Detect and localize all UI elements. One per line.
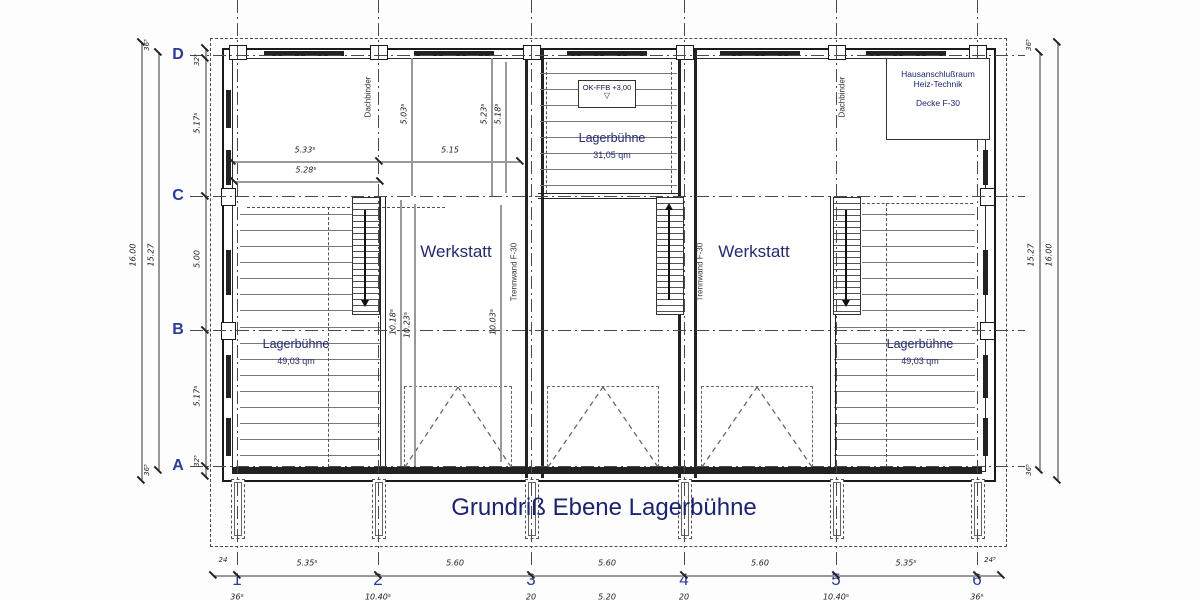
interior-vdim-6 — [500, 205, 502, 462]
interior-vdim-5 — [414, 204, 416, 466]
garage-door-2 — [547, 386, 659, 467]
stair-center-arrow-up-icon — [665, 203, 673, 210]
grid-axis-4 — [684, 0, 685, 566]
dim-bottom: 5.60 — [446, 559, 464, 568]
interior-dim-line-1 — [232, 161, 520, 163]
room-label-werkstatt-right: Werkstatt — [718, 242, 789, 262]
grid-label-A: A — [172, 457, 184, 475]
haus-box: Hausanschlußraum Heiz-Technik Decke F-30 — [886, 58, 990, 140]
garage-door-3 — [701, 386, 813, 467]
stair-right-arrow-line — [845, 210, 847, 302]
floor-plan-canvas: D C B A 1 2 3 4 5 6 24 5.35⁵ 5.60 5.60 5… — [0, 0, 1200, 600]
dim-left-wall-top: 36⁵ — [143, 39, 151, 51]
dim-right-overall: 16.00 — [1045, 244, 1054, 267]
level-marker-triangle-icon: ▽ — [579, 92, 635, 100]
grid-axis-D — [190, 55, 1025, 56]
dim-bottom2: 36⁵ — [230, 593, 243, 600]
dim-bottom: 5.60 — [598, 559, 616, 568]
stair-center-arrow-line — [668, 208, 670, 300]
right-wall-window — [983, 355, 988, 398]
dim-bottom2: 36⁵ — [970, 593, 983, 600]
dim-left-overall: 16.00 — [129, 244, 138, 267]
dim-interior: 5.33⁵ — [294, 146, 315, 155]
stair-right — [833, 197, 861, 315]
dim-interior-v: 10.18⁵ — [389, 309, 398, 335]
room-area-lager-center: 31,05 qm — [593, 150, 631, 160]
left-wall-window — [226, 250, 231, 295]
interior-vdim-2 — [491, 58, 493, 196]
dim-bottom: 5.60 — [751, 559, 769, 568]
dim-left-chain: 5.17⁵ — [193, 385, 202, 406]
dim-interior-v: 10.03⁵ — [489, 309, 498, 335]
dim-left-inner: 15.27 — [147, 244, 156, 267]
bottom-dim-line — [213, 575, 1002, 577]
dim-left-chain: 32⁵ — [193, 455, 201, 467]
platform-right-lower-hatch — [834, 312, 975, 467]
grid-label-B: B — [172, 321, 184, 339]
dim-interior-v: 10.23⁵ — [403, 312, 412, 338]
platform-right-dashed-top — [862, 203, 973, 204]
dim-left-chain: 5.00 — [193, 250, 202, 268]
dim-interior-v: 5.23⁵ — [480, 103, 489, 124]
dim-left-chain: 32⁵ — [193, 54, 201, 66]
haus-line3: Decke F-30 — [887, 98, 989, 108]
dim-bottom2: 10.40⁵ — [365, 593, 391, 600]
haus-line2: Heiz-Technik — [887, 79, 989, 89]
dachbinder-label-left: Dachbinder — [364, 77, 373, 118]
dim-interior: 5.28⁵ — [295, 166, 316, 175]
column-grid-5 — [828, 45, 846, 60]
haus-line1: Hausanschlußraum — [887, 69, 989, 79]
pilaster-right-B — [980, 322, 995, 340]
left-dim-chain — [205, 48, 207, 478]
dim-bottom: 24⁵ — [984, 556, 996, 564]
dim-interior: 5.15 — [441, 146, 459, 155]
left-wall-window — [226, 355, 231, 398]
room-label-lager-center: Lagerbühne — [579, 131, 646, 145]
left-wall-window — [226, 90, 231, 128]
right-wall-window — [983, 150, 988, 185]
canopy-post-2 — [372, 479, 386, 539]
dim-left-wall-bottom: 36⁵ — [143, 464, 151, 476]
trennwand-label-left: Trennwand F-30 — [510, 243, 519, 301]
dim-left-chain: 5.17⁵ — [193, 112, 202, 133]
level-marker-box: OK-FFB +3,00 ▽ — [578, 80, 636, 108]
room-area-lager-right: 49,03 qm — [901, 356, 939, 366]
right-dim-line-overall — [1057, 42, 1059, 480]
platform-center-dashed-right — [671, 62, 672, 193]
room-label-werkstatt-left: Werkstatt — [420, 242, 491, 262]
grid-axis-C — [190, 196, 1025, 197]
column-grid-2 — [370, 45, 388, 60]
stair-left-arrow-line — [364, 210, 366, 302]
trennwand-label-right: Trennwand F-30 — [696, 243, 705, 301]
stair-left — [352, 197, 380, 315]
platform-left-edge-beam — [380, 196, 386, 467]
left-wall-window — [226, 418, 231, 456]
dim-bottom: 24 — [219, 556, 228, 564]
grid-label-D: D — [172, 46, 184, 64]
dim-bottom2: 10.40⁵ — [823, 593, 849, 600]
room-label-lager-left: Lagerbühne — [263, 337, 330, 351]
column-grid-3 — [523, 45, 541, 60]
room-area-lager-left: 49,03 qm — [277, 356, 315, 366]
canopy-post-5 — [830, 479, 844, 539]
interior-vdim-4 — [400, 200, 402, 466]
stair-center — [656, 197, 684, 315]
right-wall-window — [983, 250, 988, 295]
grid-axis-B — [190, 330, 1025, 331]
dim-bottom2: 20 — [679, 593, 689, 600]
dim-interior-v: 5.18⁵ — [494, 103, 503, 124]
platform-center-hatch — [540, 58, 677, 194]
grid-axis-3 — [531, 0, 532, 566]
platform-left-lower-hatch — [240, 312, 381, 467]
platform-right-upper-hatch — [862, 199, 975, 312]
grid-axis-2 — [378, 0, 379, 566]
left-dim-line-inner — [158, 52, 160, 470]
bottom-wall-band — [232, 467, 982, 474]
right-dim-line-inner — [1039, 52, 1041, 470]
room-label-lager-right: Lagerbühne — [887, 337, 954, 351]
grid-axis-A — [190, 466, 1025, 467]
platform-left-upper-hatch — [240, 199, 352, 312]
garage-door-1 — [404, 386, 512, 467]
pilaster-left-B — [221, 322, 236, 340]
dachbinder-label-right: Dachbinder — [838, 77, 847, 118]
grid-label-C: C — [172, 187, 184, 205]
right-wall-window — [983, 418, 988, 456]
stair-left-arrow-down-icon — [361, 300, 369, 307]
dim-right-wall-top: 36⁵ — [1025, 39, 1033, 51]
dim-bottom2: 20 — [526, 593, 536, 600]
platform-right-dashed-edge — [886, 203, 887, 467]
dim-right-inner: 15.27 — [1027, 244, 1036, 267]
column-grid-1 — [229, 45, 247, 60]
platform-center-dashed-left — [546, 62, 547, 193]
stair-right-arrow-down-icon — [842, 300, 850, 307]
interior-dim-line-2 — [234, 181, 380, 183]
canopy-post-1 — [231, 479, 245, 539]
grid-axis-1 — [237, 0, 238, 566]
canopy-post-6 — [971, 479, 985, 539]
dim-right-wall-bottom: 36⁵ — [1025, 464, 1033, 476]
interior-vdim-3 — [505, 62, 507, 193]
column-grid-4 — [676, 45, 694, 60]
pilaster-right-C — [980, 188, 995, 206]
dim-bottom: 5.35⁵ — [895, 559, 916, 568]
left-dim-line-overall — [141, 42, 143, 480]
dim-interior-v: 5.03⁵ — [400, 103, 409, 124]
dim-bottom2: 5.20 — [598, 593, 616, 600]
dim-bottom: 5.35⁵ — [296, 559, 317, 568]
drawing-title: Grundriß Ebene Lagerbühne — [451, 494, 757, 522]
pilaster-left-C — [221, 188, 236, 206]
interior-vdim-1 — [411, 58, 413, 196]
